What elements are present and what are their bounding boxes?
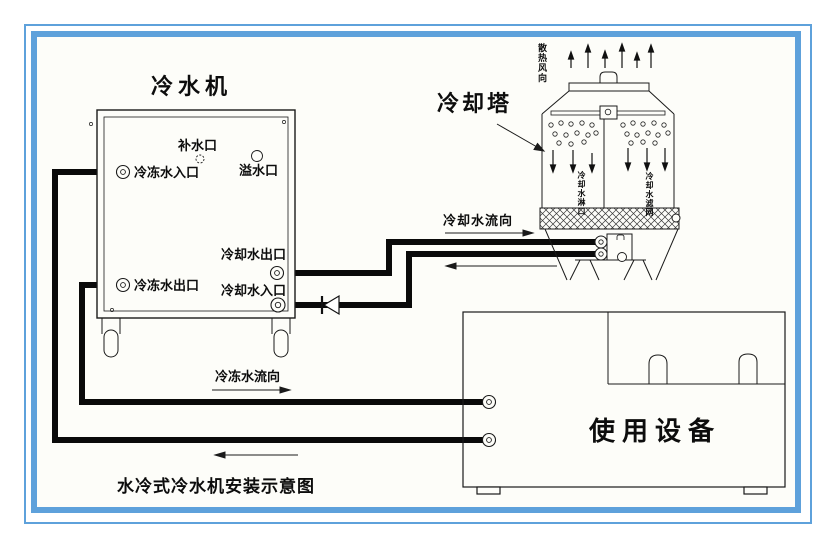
- chilled-water-outlet-label: 冷冻水出口: [134, 279, 199, 292]
- cooling-water-outlet-label: 冷却水出口: [221, 248, 286, 261]
- tower-spray-arrows: [551, 148, 668, 172]
- chilled-flow-arrow-right: [212, 387, 290, 393]
- tower-top-band: [569, 83, 649, 91]
- tower-inlet-flange: [595, 236, 607, 248]
- chilled-water-inlet-label: 冷冻水入口: [134, 166, 199, 179]
- equipment-title: 使用设备: [589, 418, 721, 444]
- tower-spray-label: 冷却水淋口: [577, 171, 585, 216]
- equipment-inner-divider: [608, 312, 785, 384]
- diagram-canvas: 冷水机 补水口 溢水口 冷冻水入口 冷冻水出口 冷却水出口 冷却水入口 冷却水流…: [0, 0, 835, 547]
- chilled-outlet-flange: [117, 279, 130, 292]
- cooling-flow-arrow-right: [445, 230, 533, 236]
- tower-leg-left: [570, 260, 599, 280]
- cooling-water-return-pipe: [284, 254, 600, 305]
- tower-fill-layer: [540, 208, 679, 229]
- caster-right: [272, 318, 290, 357]
- cooling-outlet-flange: [271, 267, 284, 280]
- tower-leg-right: [624, 260, 652, 280]
- cooling-tower-title: 冷却塔: [437, 93, 512, 115]
- diagram-caption: 水冷式冷水机安装示意图: [117, 478, 315, 495]
- tower-exhaust-arrows: [569, 44, 654, 68]
- cooling-water-inlet-label: 冷却水入口: [221, 284, 286, 297]
- panel-screw: [89, 122, 92, 125]
- tower-fan-motor: [600, 72, 617, 83]
- cooling-flow-label: 冷却水流向: [443, 214, 513, 227]
- tower-outlet-flange: [595, 248, 607, 260]
- makeup-port-label: 补水口: [178, 139, 217, 152]
- chilled-flow-label: 冷冻水流向: [215, 370, 280, 383]
- overflow-port-label: 溢水口: [239, 164, 278, 177]
- equipment-foot-right: [744, 487, 767, 494]
- tower-fill-label: 冷却水滤网: [645, 172, 653, 217]
- equipment-inlet-flange: [483, 396, 496, 409]
- cooling-inlet-flange: [271, 298, 285, 312]
- chilled-inlet-flange: [117, 166, 130, 179]
- tower-header-box: [600, 106, 617, 119]
- cooling-flow-arrow-left: [446, 263, 557, 269]
- equipment-foot-left: [477, 487, 500, 494]
- check-valve-icon: [322, 296, 339, 314]
- equipment-pipe-stub-left: [649, 355, 667, 384]
- tower-water-droplets: [549, 121, 670, 146]
- equipment-pipe-stub-right: [739, 354, 757, 384]
- tower-drain-port: [672, 214, 680, 222]
- caster-left: [102, 318, 120, 357]
- air-flow-direction-label: 散热风向: [537, 43, 546, 83]
- equipment-box: [463, 312, 785, 487]
- equipment-outlet-flange: [483, 434, 496, 447]
- tower-spray-arm-left: [551, 111, 600, 115]
- chiller-title: 冷水机: [151, 76, 232, 98]
- tower-pointer-arrow: [497, 124, 544, 151]
- tower-side-walls: [542, 114, 674, 208]
- schematic-linework: [0, 0, 835, 547]
- tower-box-drain: [618, 253, 627, 262]
- chilled-flow-arrow-left: [215, 452, 298, 458]
- tower-spray-arm-right: [617, 111, 665, 115]
